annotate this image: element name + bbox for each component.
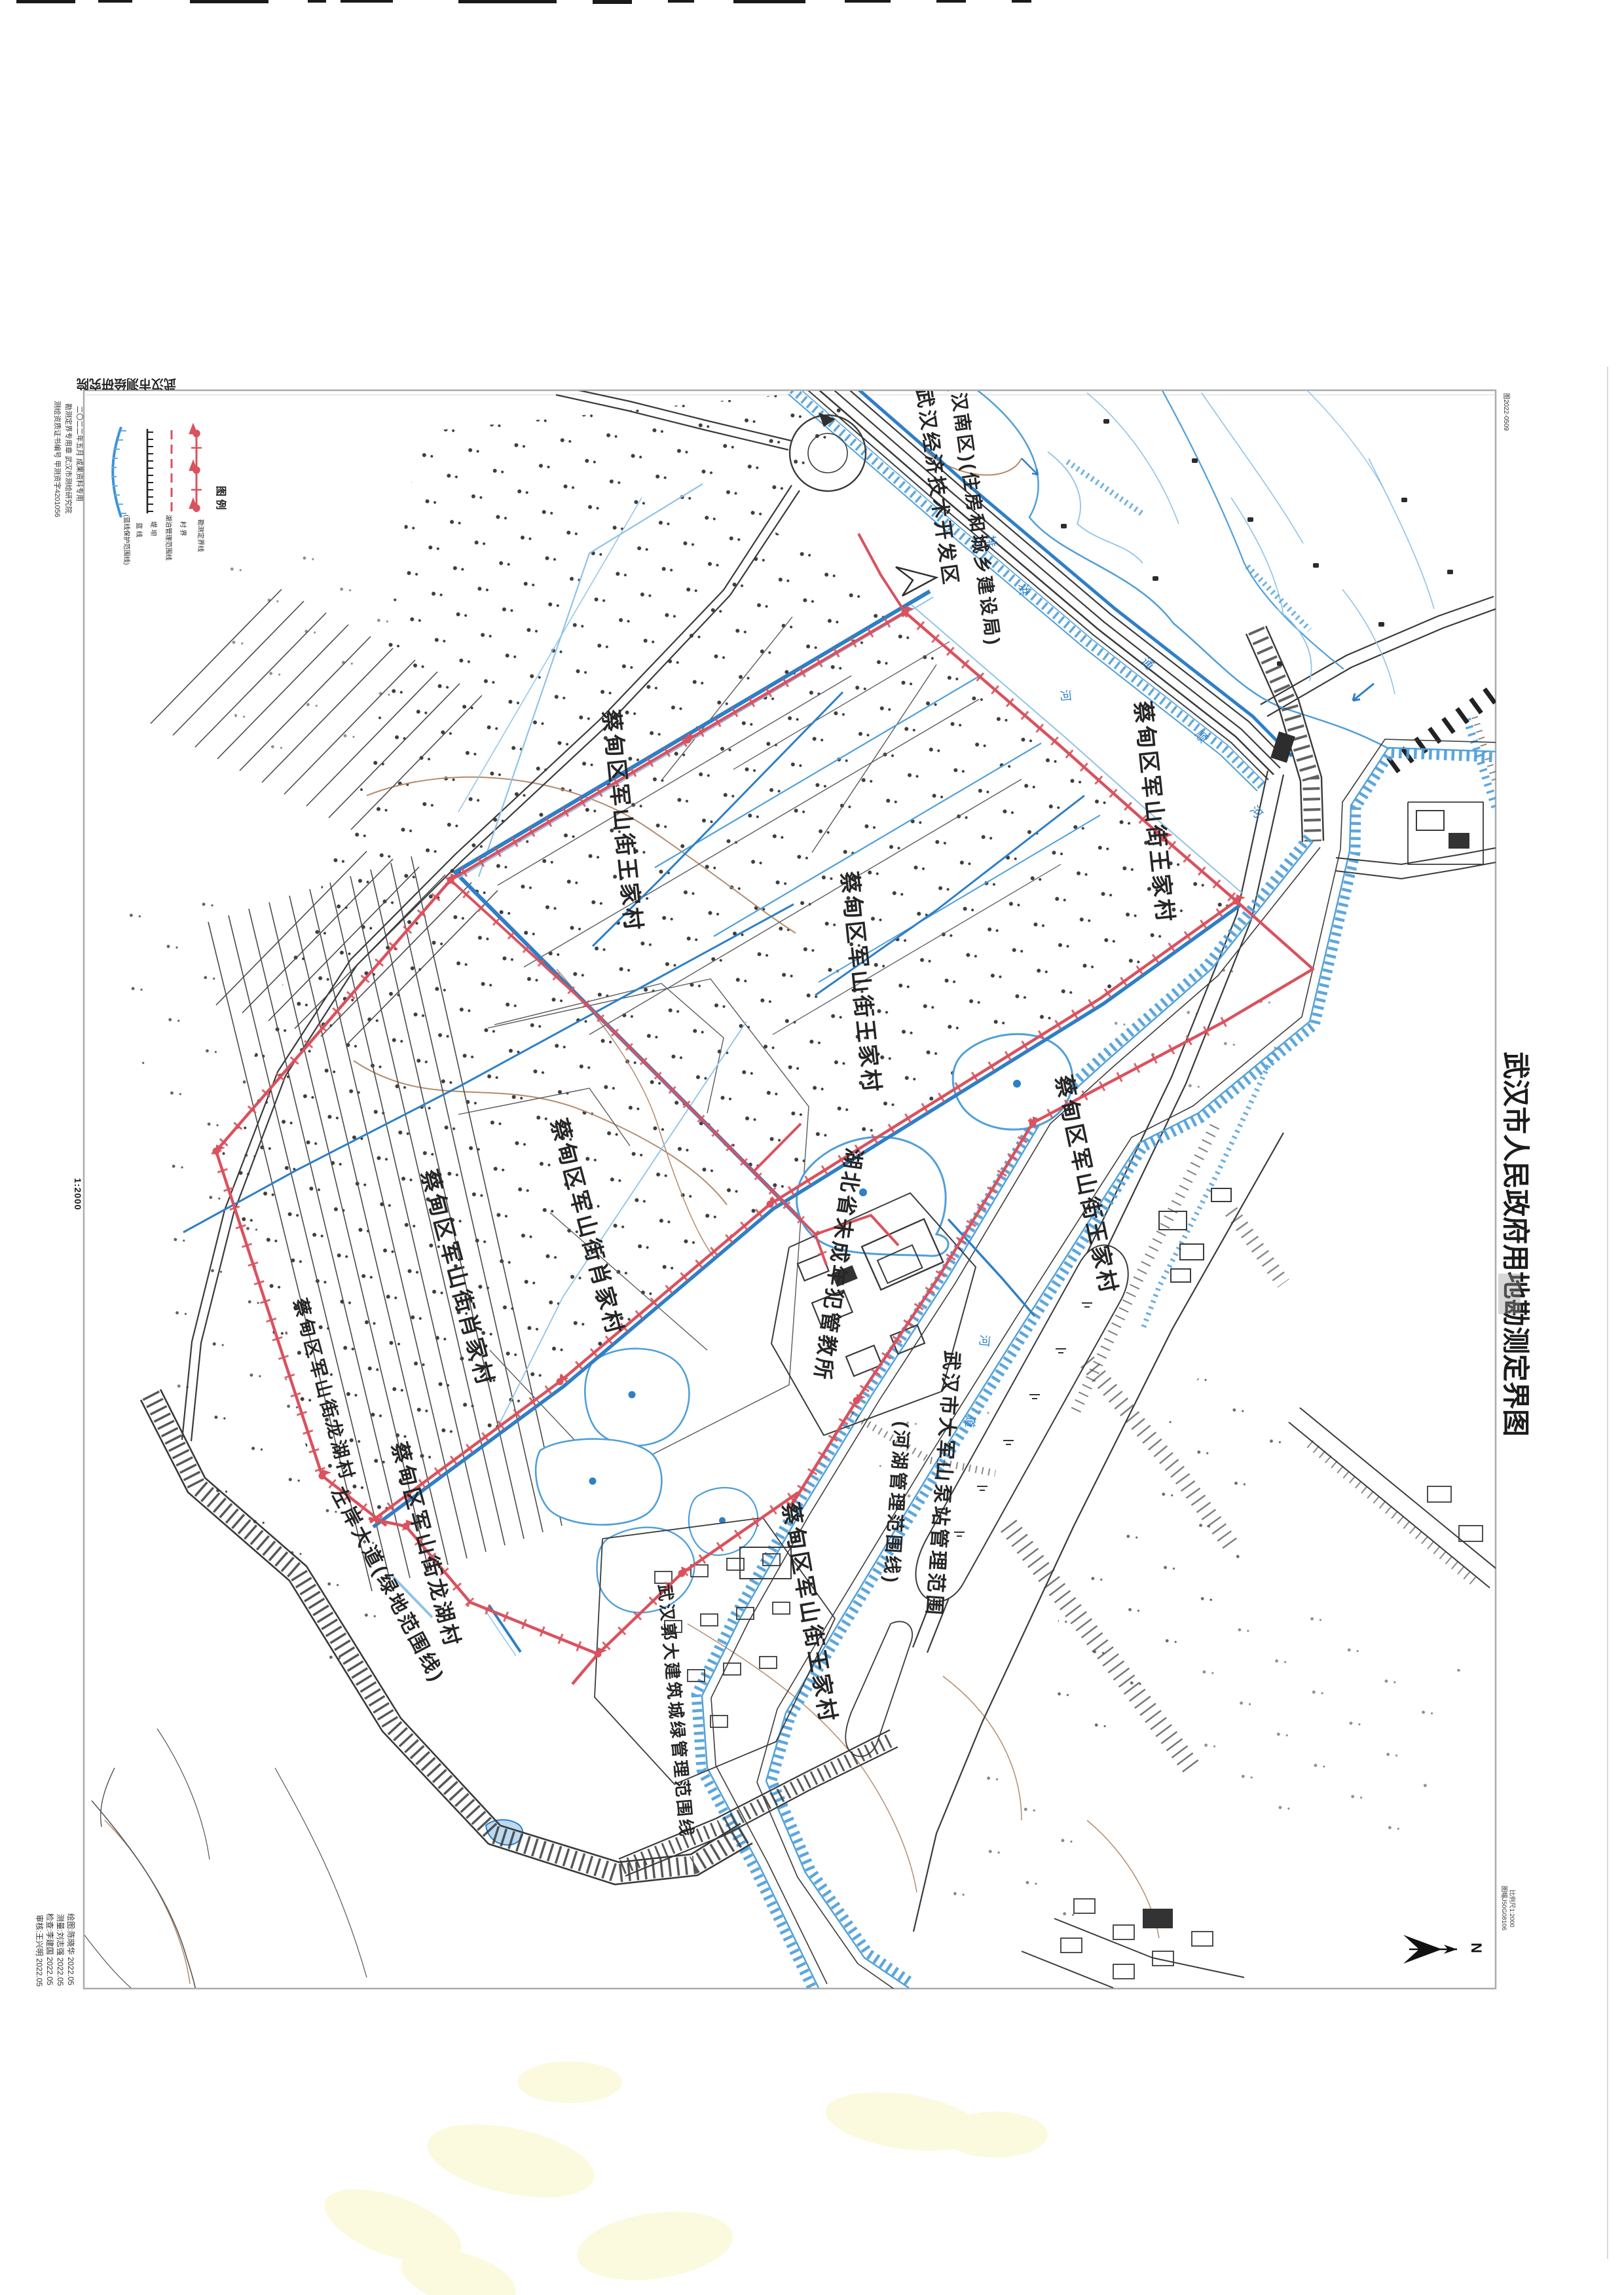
svg-text:检查:李建国 2022.05: 检查:李建国 2022.05 [45, 1913, 55, 1985]
svg-text:N: N [1468, 1943, 1485, 1953]
svg-text:湖泊管理范围线: 湖泊管理范围线 [164, 515, 173, 560]
svg-text:图 例: 图 例 [215, 486, 227, 509]
svg-text:堤 坝: 堤 坝 [149, 521, 157, 536]
svg-text:武汉郭大建筑城绿管理范围线: 武汉郭大建筑城绿管理范围线 [655, 1583, 697, 1839]
svg-text:(蓝线保护范围线): (蓝线保护范围线) [122, 515, 131, 565]
svg-text:二〇二二年五月 成果资料专用: 二〇二二年五月 成果资料专用 [75, 406, 84, 502]
svg-text:河: 河 [1058, 689, 1073, 702]
svg-text:通: 通 [1139, 655, 1156, 672]
svg-text:勘测定界线: 勘测定界线 [196, 519, 205, 552]
svg-text:1:2000: 1:2000 [73, 1178, 83, 1211]
svg-text:武汉市人民政府用地勘测定界图: 武汉市人民政府用地勘测定界图 [1500, 1052, 1531, 1437]
svg-text:比例尺1:2000: 比例尺1:2000 [1508, 1890, 1516, 1928]
svg-text:河: 河 [1247, 803, 1265, 821]
svg-text:河: 河 [977, 1334, 991, 1348]
svg-text:村 界: 村 界 [179, 521, 187, 536]
svg-text:图幅J50G08106: 图幅J50G08106 [1500, 1886, 1508, 1930]
svg-text:蓝 线: 蓝 线 [135, 523, 143, 538]
svg-text:(汉南区)(住房和城乡建设局): (汉南区)(住房和城乡建设局) [947, 382, 1005, 648]
svg-text:测绘资质证书编号 甲测资字4201056: 测绘资质证书编号 甲测资字4201056 [53, 401, 62, 517]
svg-text:图2022-0509: 图2022-0509 [1502, 393, 1510, 431]
svg-text:勘测定界专用章 武汉市测绘研究院: 勘测定界专用章 武汉市测绘研究院 [64, 403, 73, 513]
svg-text:审核:王兴明 2022.05: 审核:王兴明 2022.05 [35, 1915, 45, 1987]
svg-text:洪: 洪 [1016, 583, 1031, 596]
svg-text:测量:刘志强 2022.05: 测量:刘志强 2022.05 [56, 1914, 65, 1986]
svg-text:道: 道 [963, 1416, 976, 1429]
svg-text:绘图:陈晓华 2022.05: 绘图:陈晓华 2022.05 [66, 1913, 76, 1985]
svg-text:武汉市测绘研究院: 武汉市测绘研究院 [77, 376, 176, 392]
